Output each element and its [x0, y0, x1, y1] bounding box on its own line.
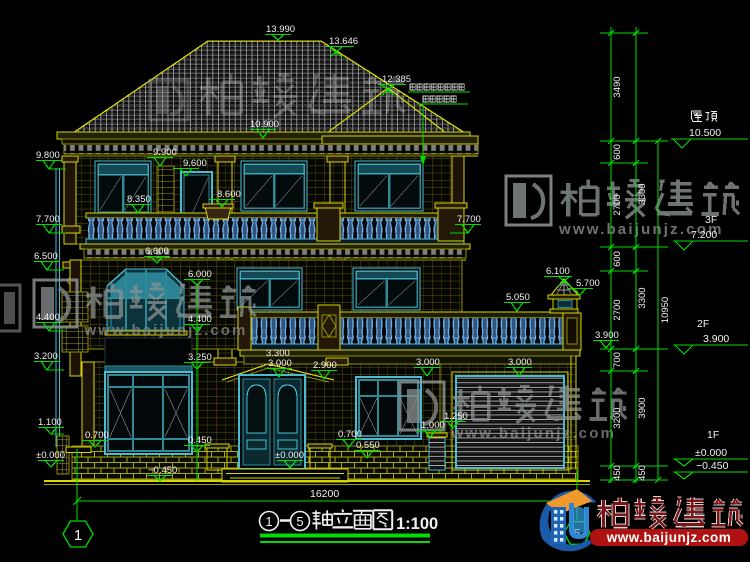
svg-text:6.600: 6.600 [145, 246, 169, 257]
svg-text:10.500: 10.500 [689, 127, 721, 139]
svg-text:www.baijunjz.com: www.baijunjz.com [606, 530, 732, 545]
svg-text:3.000: 3.000 [268, 358, 292, 369]
svg-text:±0.000: ±0.000 [695, 447, 727, 459]
svg-text:13.990: 13.990 [266, 24, 295, 35]
svg-text:9.900: 9.900 [153, 147, 177, 158]
svg-text:0.700: 0.700 [338, 429, 362, 440]
svg-text:2700: 2700 [612, 194, 623, 215]
svg-text:3300: 3300 [637, 183, 648, 204]
svg-text:1: 1 [265, 514, 272, 529]
svg-text:3.000: 3.000 [416, 357, 440, 368]
svg-text:−0.450: −0.450 [148, 465, 177, 476]
svg-text:1: 1 [74, 527, 82, 544]
svg-text:−0.450: −0.450 [696, 460, 729, 472]
svg-text:450: 450 [612, 465, 623, 481]
svg-text:3300: 3300 [637, 287, 648, 308]
svg-text:6.500: 6.500 [34, 251, 58, 262]
svg-text:1:100: 1:100 [396, 515, 438, 533]
svg-text:7.700: 7.700 [36, 214, 60, 225]
svg-text:9.600: 9.600 [183, 158, 207, 169]
svg-text:0.700: 0.700 [85, 430, 109, 441]
svg-text:6.100: 6.100 [546, 266, 570, 277]
svg-text:1F: 1F [707, 429, 719, 441]
svg-text:2.900: 2.900 [313, 360, 337, 371]
svg-text:1.000: 1.000 [421, 420, 445, 431]
svg-text:13.646: 13.646 [329, 36, 358, 47]
svg-text:3200: 3200 [612, 407, 623, 428]
svg-text:8.350: 8.350 [127, 194, 151, 205]
svg-text:3.000: 3.000 [508, 357, 532, 368]
svg-text:9.800: 9.800 [36, 150, 60, 161]
svg-text:3F: 3F [705, 214, 717, 226]
svg-text:16200: 16200 [310, 488, 339, 500]
svg-text:10950: 10950 [660, 297, 671, 323]
svg-text:3.200: 3.200 [34, 351, 58, 362]
svg-text:4.400: 4.400 [188, 314, 212, 325]
svg-text:10.900: 10.900 [250, 119, 279, 130]
svg-text:700: 700 [612, 352, 623, 368]
svg-text:7.200: 7.200 [691, 229, 717, 241]
svg-text:600: 600 [612, 144, 623, 160]
svg-text:7.700: 7.700 [457, 214, 481, 225]
svg-text:8.600: 8.600 [217, 189, 241, 200]
svg-text:12.385: 12.385 [382, 74, 411, 85]
svg-text:0.550: 0.550 [356, 440, 380, 451]
svg-text:450: 450 [637, 465, 648, 481]
svg-text:±0.000: ±0.000 [36, 450, 65, 461]
svg-text:3490: 3490 [612, 76, 623, 97]
svg-text:www.baijunjz.com: www.baijunjz.com [450, 425, 616, 442]
svg-text:3.900: 3.900 [595, 330, 619, 341]
svg-text:5.050: 5.050 [506, 292, 530, 303]
svg-text:0.450: 0.450 [188, 435, 212, 446]
svg-text:3900: 3900 [637, 397, 648, 418]
svg-text:5: 5 [296, 514, 303, 529]
svg-text:3.250: 3.250 [188, 352, 212, 363]
svg-text:2F: 2F [697, 318, 709, 330]
svg-text:6.000: 6.000 [188, 269, 212, 280]
svg-text:3.900: 3.900 [703, 333, 729, 345]
svg-text:2700: 2700 [612, 299, 623, 320]
svg-text:5.700: 5.700 [576, 278, 600, 289]
svg-text:±0.000: ±0.000 [275, 450, 304, 461]
svg-text:1.250: 1.250 [444, 411, 468, 422]
svg-text:600: 600 [612, 251, 623, 267]
svg-text:www.baijunjz.com: www.baijunjz.com [83, 322, 247, 339]
svg-text:1.100: 1.100 [38, 417, 62, 428]
svg-text:4.400: 4.400 [36, 312, 60, 323]
